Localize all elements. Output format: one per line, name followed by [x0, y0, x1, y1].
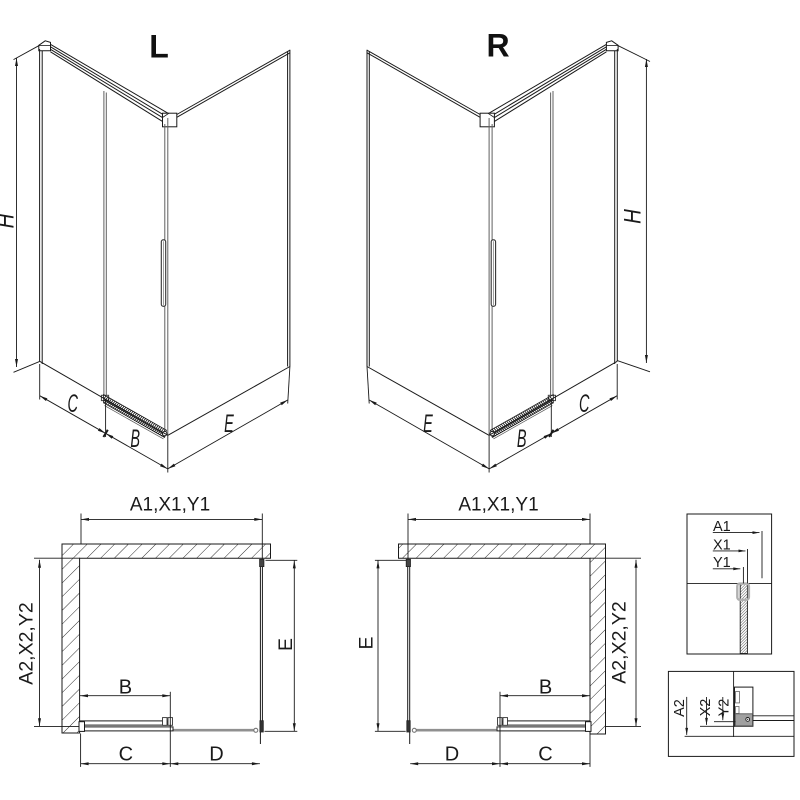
svg-text:E: E	[356, 636, 378, 649]
svg-text:B: B	[517, 426, 527, 453]
svg-text:A1: A1	[713, 519, 731, 535]
svg-text:B: B	[130, 426, 140, 453]
svg-text:C: C	[119, 743, 133, 765]
svg-text:C: C	[67, 391, 78, 418]
svg-text:E: E	[423, 411, 433, 438]
svg-text:X2: X2	[698, 699, 714, 717]
svg-text:R: R	[486, 28, 509, 64]
svg-text:Y1: Y1	[713, 555, 731, 571]
svg-text:A1,X1,Y1: A1,X1,Y1	[130, 495, 210, 516]
svg-text:A2,X2,Y2: A2,X2,Y2	[16, 602, 38, 684]
svg-text:Y2: Y2	[717, 699, 733, 717]
svg-text:D: D	[445, 743, 459, 765]
svg-text:C: C	[538, 743, 552, 765]
svg-text:B: B	[539, 676, 552, 698]
svg-text:A2,X2,Y2: A2,X2,Y2	[609, 601, 631, 683]
svg-text:H: H	[0, 213, 19, 229]
svg-text:A2: A2	[672, 699, 688, 717]
svg-text:D: D	[209, 743, 223, 765]
svg-text:H: H	[619, 208, 646, 224]
svg-text:A1,X1,Y1: A1,X1,Y1	[458, 495, 538, 516]
svg-text:C: C	[579, 391, 590, 418]
svg-text:L: L	[149, 29, 169, 65]
svg-text:E: E	[224, 411, 234, 438]
svg-text:B: B	[119, 676, 132, 698]
svg-text:E: E	[275, 638, 297, 651]
svg-text:X1: X1	[713, 537, 731, 553]
